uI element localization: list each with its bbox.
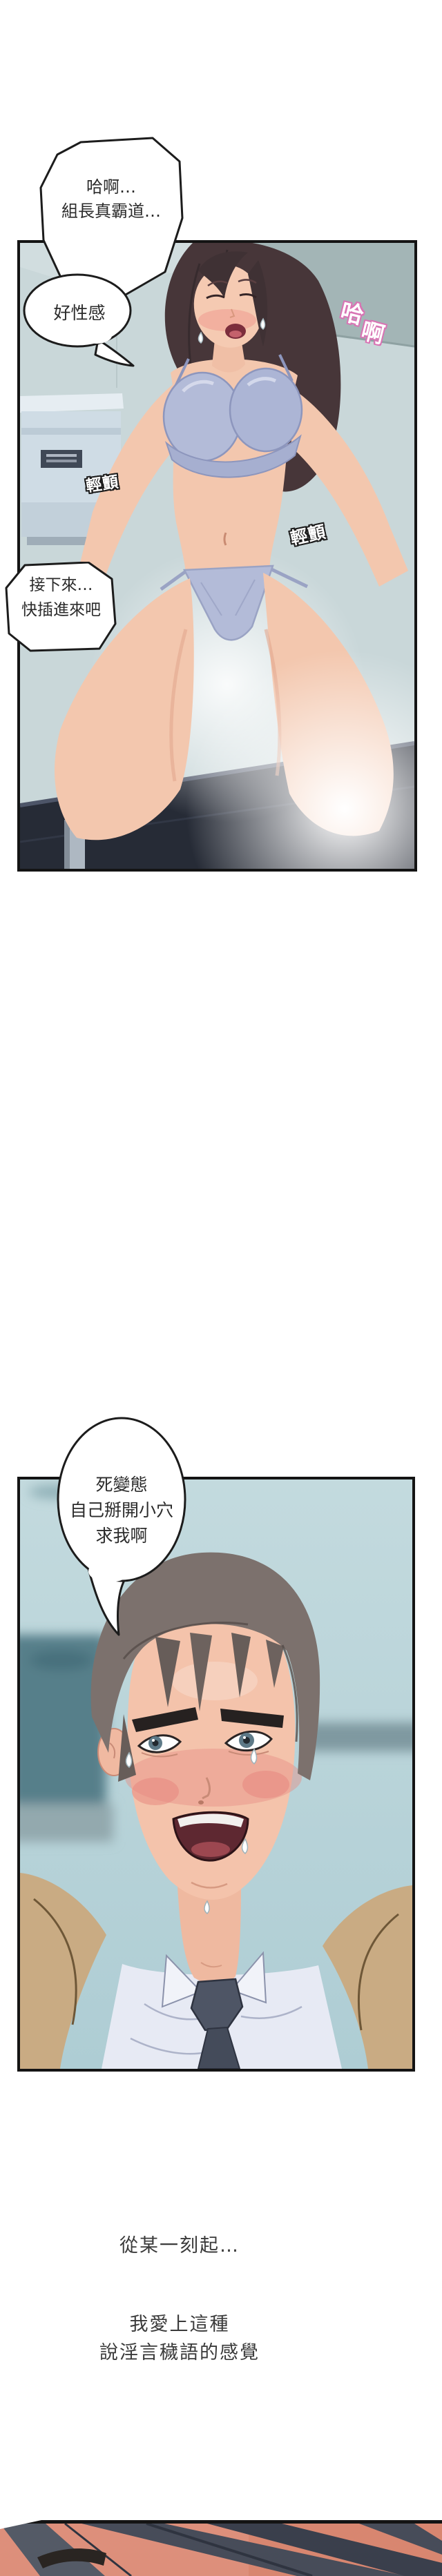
speech-bubble-2: 好性感	[21, 272, 138, 368]
narration-1-line: 從某一刻起…	[0, 2230, 359, 2257]
panel-3-partial	[0, 2520, 442, 2576]
bubble-2-line: 好性感	[53, 299, 105, 324]
narration-2-line: 說淫言穢語的感覺	[0, 2339, 359, 2367]
bubble-3-text: 接下來… 快插進來吧	[4, 562, 118, 622]
bubble-3-line: 接下來…	[30, 573, 93, 598]
bubble-1-line: 哈啊…	[86, 175, 136, 199]
bubble-1-text: 哈啊… 組長真霸道…	[38, 137, 184, 224]
bubble-4-line: 自己掰開小穴	[70, 1497, 173, 1523]
narration-1: 從某一刻起…	[0, 2230, 359, 2257]
bubble-4-line: 求我啊	[95, 1523, 147, 1548]
bubble-4-line: 死變態	[95, 1472, 147, 1497]
bubble-2-text: 好性感	[21, 272, 138, 324]
bubble-3-line: 快插進來吧	[21, 598, 101, 622]
webtoon-page: 哈啊… 組長真霸道… 好性感 接下來… 快插進來吧 死變態 自己掰開	[0, 0, 442, 2576]
speech-bubble-4: 死變態 自己掰開小穴 求我啊	[55, 1415, 188, 1636]
bubble-1-line: 組長真霸道…	[61, 199, 161, 224]
bubble-4-text: 死變態 自己掰開小穴 求我啊	[55, 1415, 188, 1548]
panel-3-top-border	[0, 2520, 442, 2524]
speech-bubble-3: 接下來… 快插進來吧	[4, 562, 118, 653]
sfx-moan: 哈 啊	[340, 295, 402, 357]
panel-3-art	[0, 2520, 442, 2576]
narration-2-line: 我愛上這種	[0, 2310, 359, 2339]
narration-2: 我愛上這種 說淫言穢語的感覺	[0, 2310, 359, 2367]
sfx-tremble-1: 輕顫	[84, 469, 120, 496]
